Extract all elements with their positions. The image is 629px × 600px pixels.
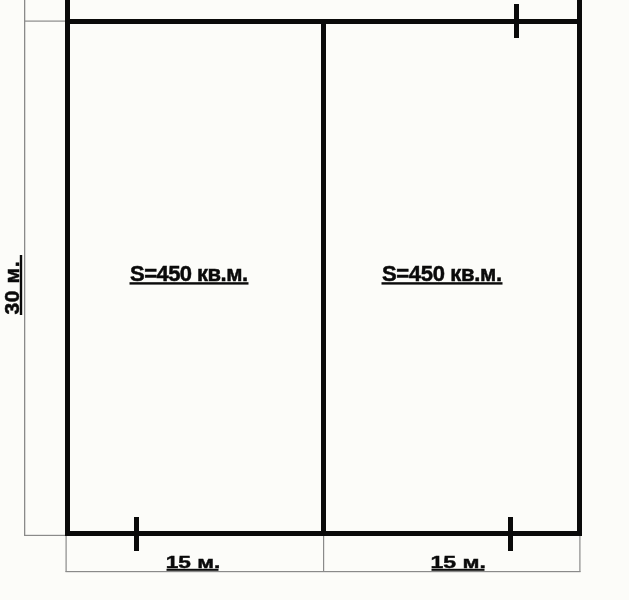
svg-text:15 м.: 15 м. bbox=[431, 553, 486, 571]
svg-text:30 м.: 30 м. bbox=[0, 262, 23, 315]
svg-text:15 м.: 15 м. bbox=[166, 553, 221, 571]
